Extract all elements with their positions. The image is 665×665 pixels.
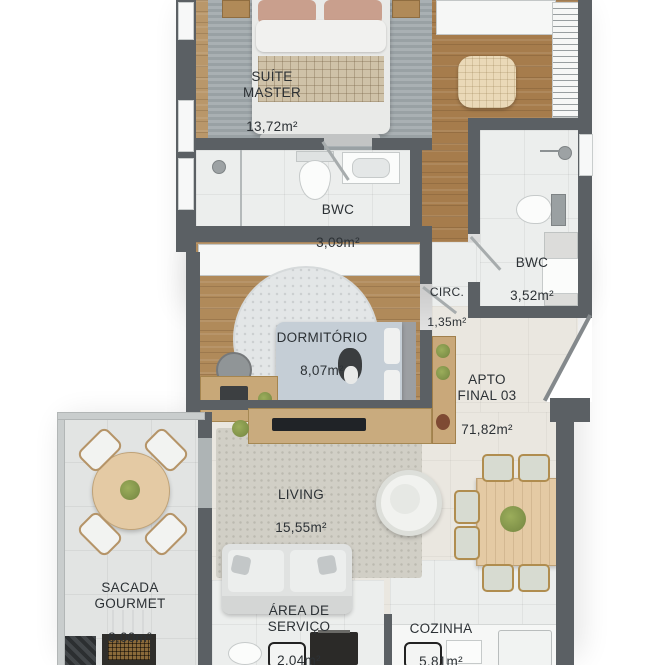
floor-plan: SUÍTE MASTER 13,72m² BWC 3,09m² BWC 3,52… bbox=[0, 0, 665, 665]
wall-bwc2-left bbox=[468, 130, 480, 234]
closet-pouf bbox=[458, 56, 516, 108]
label-circ: CIRC. 1,35m² bbox=[427, 270, 466, 344]
room-area: 2,04m² bbox=[268, 653, 331, 665]
room-area: 3,09m² bbox=[316, 235, 360, 252]
balcony-railing bbox=[57, 412, 205, 420]
throw-pillow bbox=[317, 555, 338, 576]
wall-left-mid bbox=[186, 252, 200, 412]
wardrobe-shelf bbox=[436, 0, 556, 35]
balcony-corner-deco bbox=[64, 636, 96, 665]
label-dormitorio: DORMITÓRIO 8,07m² bbox=[277, 313, 368, 397]
window bbox=[579, 134, 593, 176]
plant bbox=[232, 420, 249, 437]
room-name: BWC bbox=[316, 202, 360, 219]
bed-pillow bbox=[384, 328, 400, 364]
wall-notch bbox=[550, 398, 590, 422]
label-servico: ÁREA DE SERVIÇO 2,04m² bbox=[268, 586, 331, 665]
unit-area: 71,82m² bbox=[458, 422, 517, 439]
room-area: 13,72m² bbox=[243, 119, 301, 136]
tv bbox=[272, 418, 366, 431]
plant bbox=[436, 366, 450, 380]
shower-head-icon bbox=[212, 160, 226, 174]
shower-arm bbox=[540, 150, 560, 152]
label-cozinha: COZINHA 5,81m² bbox=[410, 604, 473, 665]
label-suite-master: SUÍTE MASTER 13,72m² bbox=[243, 52, 301, 152]
armchair-cushion bbox=[390, 484, 420, 514]
room-name: LIVING bbox=[275, 487, 327, 504]
room-name: SUÍTE MASTER bbox=[243, 69, 301, 102]
room-name: BWC bbox=[510, 255, 554, 272]
plant bbox=[500, 506, 526, 532]
window bbox=[178, 158, 194, 210]
room-area: 15,55m² bbox=[275, 520, 327, 537]
wall-bwc-corridor bbox=[410, 150, 422, 228]
room-area: 8,00m² bbox=[94, 630, 165, 647]
laundry-sink bbox=[228, 642, 262, 665]
label-unit: APTO FINAL 03 71,82m² bbox=[458, 355, 517, 455]
dining-chair bbox=[454, 526, 480, 560]
toilet-tank bbox=[551, 194, 566, 226]
room-name: DORMITÓRIO bbox=[277, 330, 368, 347]
wall-servico-cozinha bbox=[384, 614, 392, 665]
room-area: 1,35m² bbox=[427, 315, 466, 330]
nightstand bbox=[222, 0, 250, 18]
wall-suite-bwc bbox=[372, 138, 432, 150]
dry-plant bbox=[436, 414, 450, 430]
label-living: LIVING 15,55m² bbox=[275, 470, 327, 554]
shower-head-icon bbox=[558, 146, 572, 160]
wall-right-bottom bbox=[556, 422, 574, 665]
room-area: 8,07m² bbox=[277, 363, 368, 380]
dining-chair bbox=[482, 454, 514, 482]
plant bbox=[120, 480, 140, 500]
plant bbox=[436, 344, 450, 358]
room-area: 5,81m² bbox=[410, 654, 473, 665]
bed-pillow-white bbox=[256, 20, 386, 52]
balcony-glass-door bbox=[198, 438, 212, 508]
balcony-railing bbox=[57, 412, 65, 665]
room-area: 3,52m² bbox=[510, 288, 554, 305]
shower-glass bbox=[240, 150, 242, 226]
window bbox=[178, 2, 194, 40]
wall-bwc2-top bbox=[468, 118, 578, 130]
fridge bbox=[498, 630, 552, 665]
room-name: CIRC. bbox=[427, 285, 466, 300]
room-name: COZINHA bbox=[410, 621, 473, 638]
sink-basin bbox=[352, 158, 390, 178]
dining-chair bbox=[454, 490, 480, 524]
label-bwc-social: BWC 3,52m² bbox=[510, 238, 554, 322]
throw-pillow bbox=[230, 554, 251, 575]
wall-bwc-dorm bbox=[176, 226, 432, 242]
window bbox=[178, 100, 194, 152]
room-name: ÁREA DE SERVIÇO bbox=[268, 603, 331, 636]
dining-chair bbox=[518, 454, 550, 482]
room-name: SACADA GOURMET bbox=[94, 580, 165, 613]
nightstand bbox=[392, 0, 420, 18]
label-sacada: SACADA GOURMET 8,00m² bbox=[94, 563, 165, 663]
unit-name: APTO FINAL 03 bbox=[458, 372, 517, 405]
label-bwc-suite: BWC 3,09m² bbox=[316, 185, 360, 269]
dining-chair bbox=[518, 564, 550, 592]
wardrobe bbox=[552, 2, 580, 118]
dining-chair bbox=[482, 564, 514, 592]
toilet bbox=[516, 195, 552, 224]
